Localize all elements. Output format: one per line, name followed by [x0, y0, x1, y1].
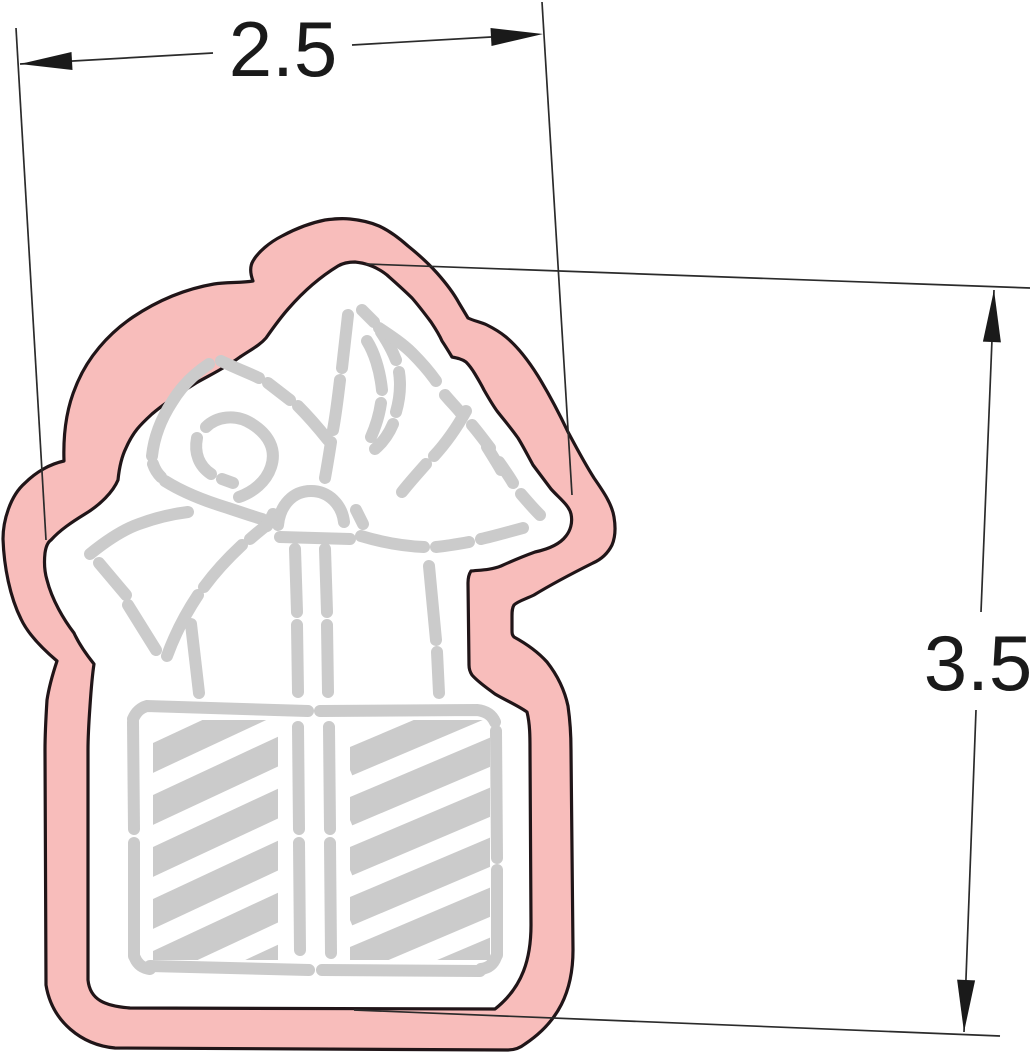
svg-text:3.5: 3.5 — [924, 619, 1030, 707]
svg-text:2.5: 2.5 — [229, 5, 337, 93]
